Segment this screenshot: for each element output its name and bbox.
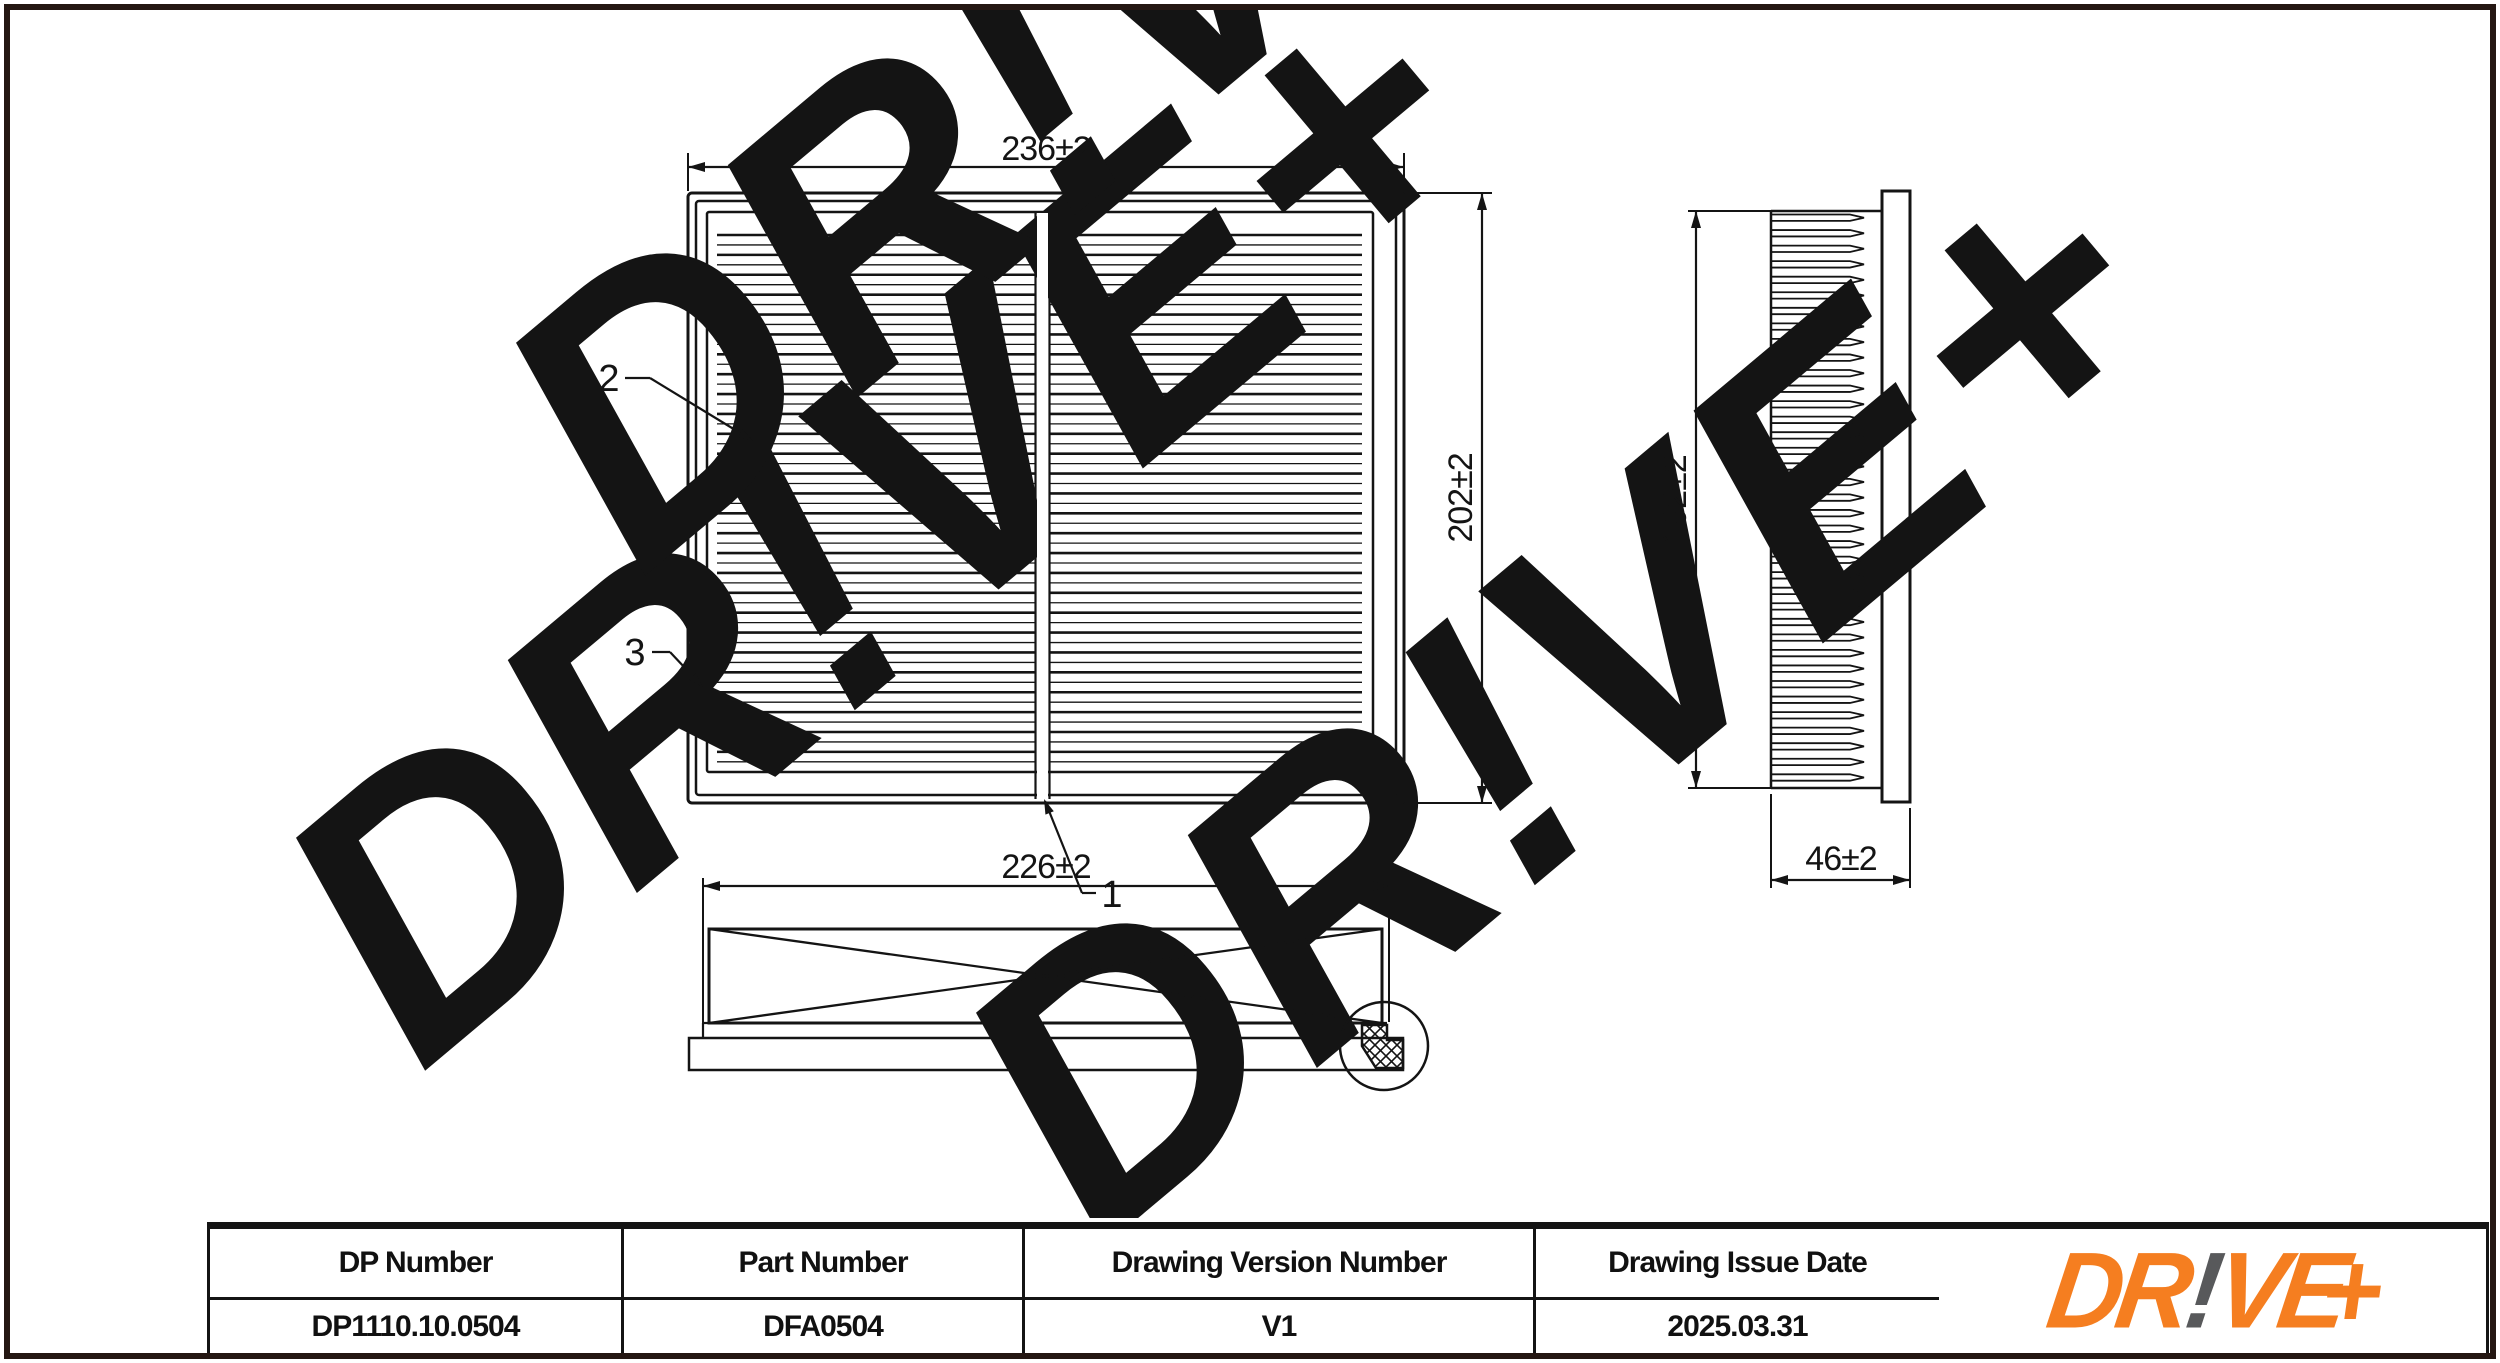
header-issue-date: Drawing Issue Date	[1536, 1229, 1939, 1300]
logo-cell: DR!VE+	[1939, 1229, 2486, 1354]
dim-bottom-width: 226±2	[1001, 848, 1090, 886]
header-dp-number: DP Number	[210, 1229, 624, 1300]
callout-1-divider: 1	[1101, 874, 1122, 916]
value-dp-number: DP1110.10.0504	[210, 1300, 624, 1354]
header-part-number: Part Number	[624, 1229, 1025, 1300]
dim-side-depth: 46±2	[1805, 840, 1876, 878]
callout-3-frame: 3	[624, 632, 645, 674]
logo-text-dr: DR	[2041, 1231, 2194, 1352]
dim-front-width: 236±2	[1001, 130, 1090, 168]
technical-drawing: DR!VE+ DR!VE+ DR!VE+ 236±2 202±2 226±2 1…	[0, 0, 2500, 1363]
drawing-sheet: DR!VE+ DR!VE+ DR!VE+ 236±2 202±2 226±2 1…	[0, 0, 2500, 1363]
drive-plus-logo: DR!VE+	[2041, 1230, 2385, 1354]
header-drawing-version: Drawing Version Number	[1025, 1229, 1536, 1300]
dim-front-height: 202±2	[1442, 453, 1480, 542]
value-part-number: DFA0504	[624, 1300, 1025, 1354]
callout-2-pleat: 2	[598, 358, 619, 400]
value-issue-date: 2025.03.31	[1536, 1300, 1939, 1354]
dim-side-height: 192±2	[1656, 455, 1694, 544]
title-block: DP Number Part Number Drawing Version Nu…	[207, 1222, 2489, 1358]
watermark-layer: DR!VE+ DR!VE+ DR!VE+	[199, 0, 2237, 1312]
value-drawing-version: V1	[1025, 1300, 1536, 1354]
